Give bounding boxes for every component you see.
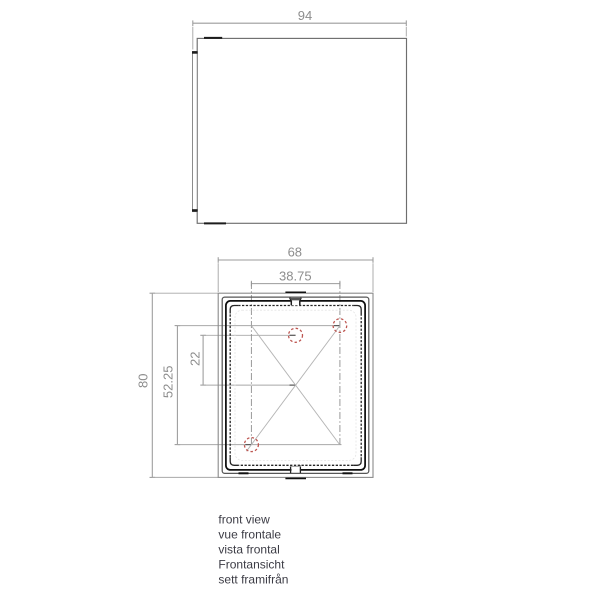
svg-text:Frontansicht: Frontansicht <box>218 557 285 571</box>
svg-text:22: 22 <box>187 351 202 365</box>
svg-text:94: 94 <box>298 8 312 23</box>
svg-text:vista frontal: vista frontal <box>218 542 279 556</box>
svg-text:80: 80 <box>136 374 151 388</box>
svg-text:front view: front view <box>218 512 270 526</box>
svg-text:52.25: 52.25 <box>161 366 176 399</box>
svg-text:vue frontale: vue frontale <box>218 527 281 541</box>
svg-text:sett framifrån: sett framifrån <box>218 572 288 586</box>
svg-text:38.75: 38.75 <box>279 269 312 284</box>
svg-text:68: 68 <box>288 245 302 260</box>
